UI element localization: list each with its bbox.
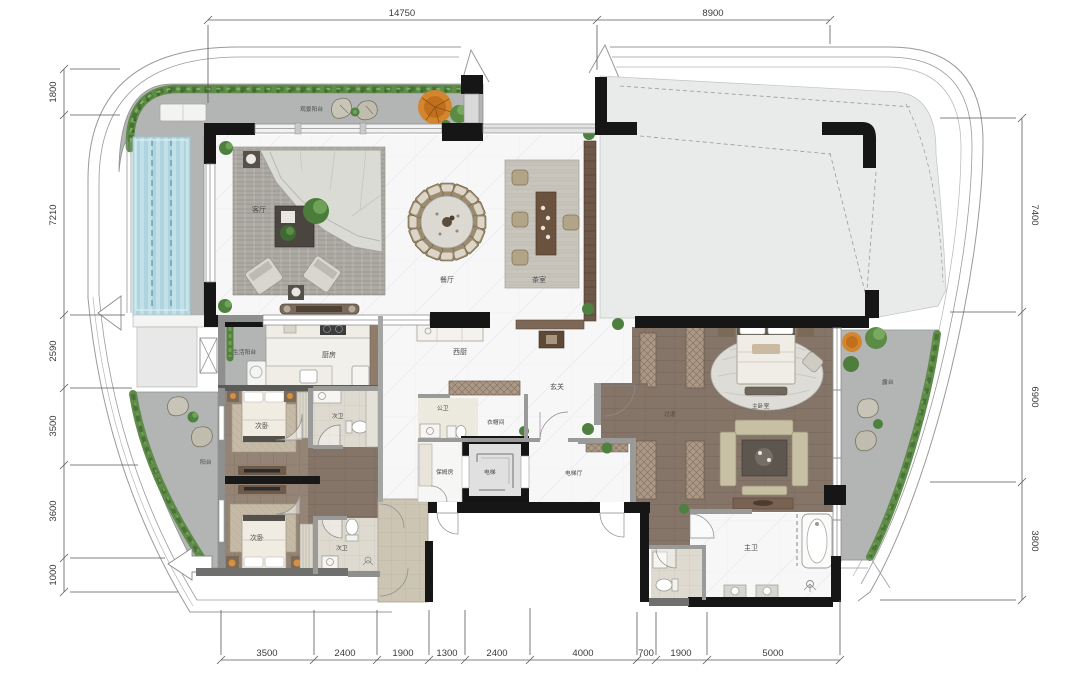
svg-text:8900: 8900 bbox=[702, 8, 723, 19]
svg-text:14750: 14750 bbox=[389, 8, 415, 19]
svg-text:主卧室: 主卧室 bbox=[752, 402, 770, 410]
svg-text:次卧: 次卧 bbox=[255, 421, 269, 430]
svg-text:1900: 1900 bbox=[392, 648, 413, 659]
svg-text:3800: 3800 bbox=[1029, 530, 1040, 551]
svg-text:过道: 过道 bbox=[664, 410, 676, 418]
svg-text:玄关: 玄关 bbox=[550, 382, 564, 391]
svg-text:观景阳台: 观景阳台 bbox=[300, 105, 323, 113]
svg-text:衣帽间: 衣帽间 bbox=[487, 418, 505, 426]
svg-text:3600: 3600 bbox=[48, 500, 59, 521]
svg-text:次卧: 次卧 bbox=[250, 533, 264, 542]
svg-text:1300: 1300 bbox=[436, 648, 457, 659]
svg-text:餐厅: 餐厅 bbox=[440, 275, 454, 284]
svg-text:厨房: 厨房 bbox=[322, 350, 336, 359]
svg-text:2590: 2590 bbox=[48, 340, 59, 361]
svg-text:7400: 7400 bbox=[1029, 204, 1040, 225]
svg-text:1900: 1900 bbox=[670, 648, 691, 659]
svg-text:1000: 1000 bbox=[48, 564, 59, 585]
svg-text:700: 700 bbox=[638, 648, 654, 659]
svg-text:公卫: 公卫 bbox=[437, 405, 449, 412]
svg-text:3500: 3500 bbox=[256, 648, 277, 659]
svg-text:4000: 4000 bbox=[572, 648, 593, 659]
svg-text:2400: 2400 bbox=[334, 648, 355, 659]
svg-text:西厨: 西厨 bbox=[453, 348, 467, 356]
svg-text:2400: 2400 bbox=[486, 648, 507, 659]
svg-text:6900: 6900 bbox=[1029, 386, 1040, 407]
svg-text:次卫: 次卫 bbox=[336, 544, 348, 552]
svg-text:客厅: 客厅 bbox=[252, 205, 266, 214]
svg-text:1800: 1800 bbox=[48, 81, 59, 102]
svg-text:阳台: 阳台 bbox=[200, 458, 212, 466]
svg-text:7210: 7210 bbox=[48, 204, 59, 225]
svg-text:生活阳台: 生活阳台 bbox=[233, 348, 256, 356]
svg-text:保姆房: 保姆房 bbox=[436, 468, 454, 476]
svg-text:露台: 露台 bbox=[882, 378, 894, 386]
svg-text:电梯厅: 电梯厅 bbox=[565, 469, 583, 477]
svg-text:3500: 3500 bbox=[48, 415, 59, 436]
svg-text:茶室: 茶室 bbox=[532, 275, 546, 284]
svg-text:电梯: 电梯 bbox=[484, 468, 496, 476]
svg-text:次卫: 次卫 bbox=[332, 412, 344, 420]
svg-text:5000: 5000 bbox=[762, 648, 783, 659]
svg-text:主卫: 主卫 bbox=[744, 543, 758, 552]
